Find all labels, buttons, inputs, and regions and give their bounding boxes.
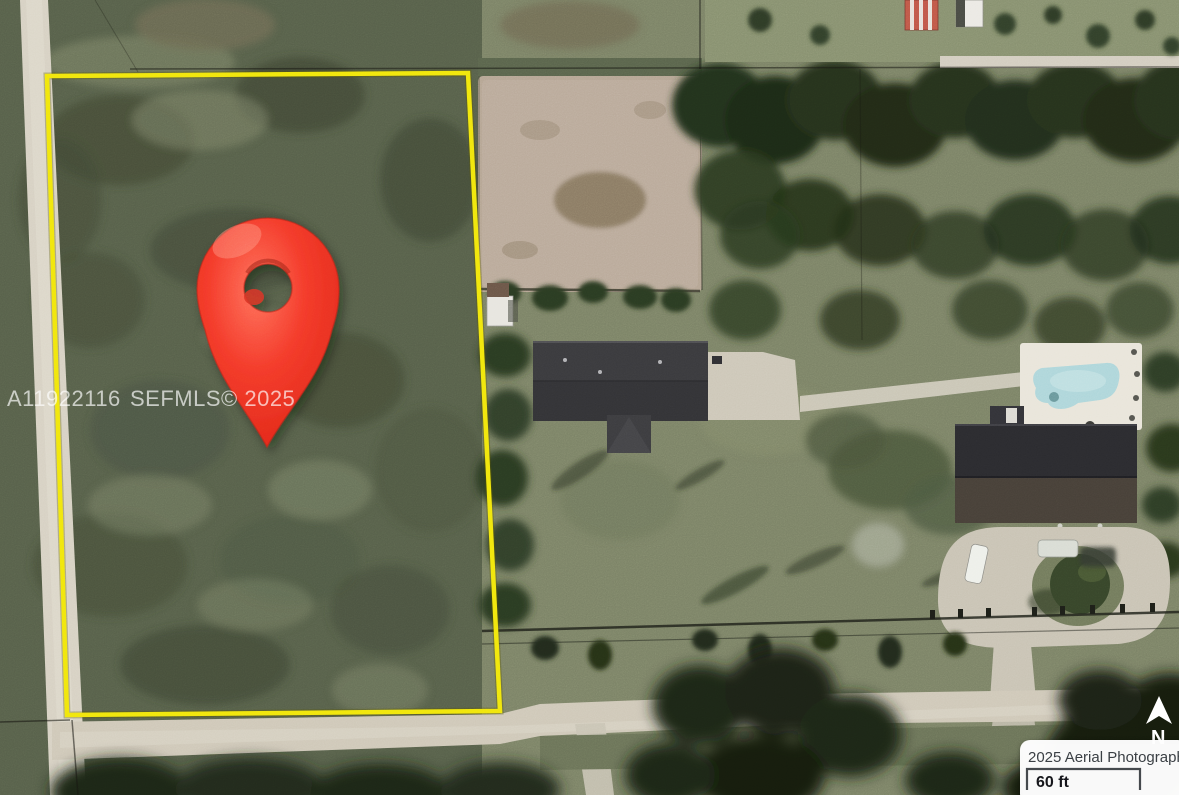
aerial-photo[interactable]: A11922116 SEFMLS© 2025 N 2025 Aerial Pho… bbox=[0, 0, 1179, 795]
watermark: A11922116 SEFMLS© 2025 bbox=[7, 386, 295, 411]
watermark-attribution: SEFMLS© 2025 bbox=[130, 386, 295, 411]
attribution-box: 2025 Aerial Photography 60 ft bbox=[1020, 740, 1179, 795]
photo-attribution-label: 2025 Aerial Photography bbox=[1028, 749, 1179, 766]
scale-bar-label: 60 ft bbox=[1036, 774, 1070, 791]
watermark-mls-number: A11922116 bbox=[7, 386, 121, 411]
aerial-map-scene: A11922116 SEFMLS© 2025 N 2025 Aerial Pho… bbox=[0, 0, 1179, 795]
